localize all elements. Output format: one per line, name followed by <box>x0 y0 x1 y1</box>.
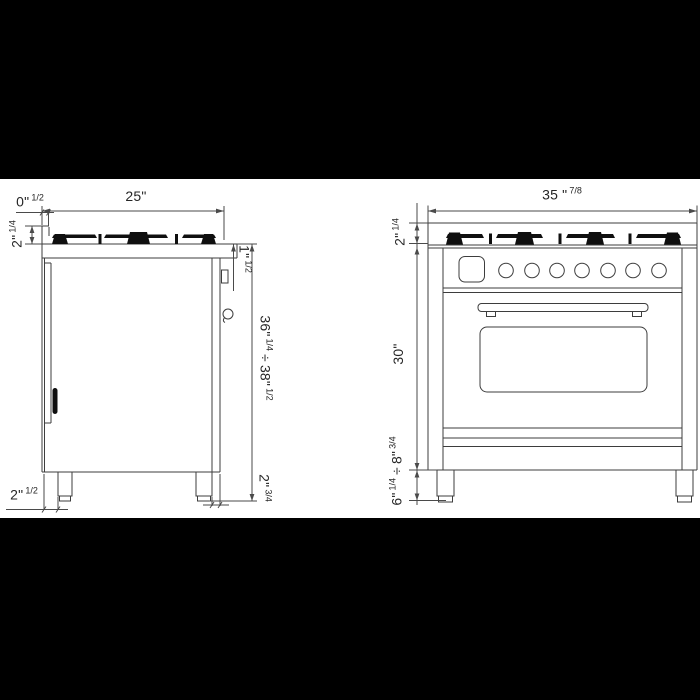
dim-front-width: 35 "7/8 <box>542 187 582 202</box>
dim-side-depth: 25" <box>125 189 146 203</box>
appliance-dimension-drawing: 0"1/2 25" 2"1/4 1"1/2 36"1/4÷38"1/2 2"1/… <box>0 0 700 700</box>
control-knobs <box>499 263 667 278</box>
dim-side-front-leg-inset: 2"3/4 <box>258 474 273 502</box>
front-cooktop-grates <box>446 232 681 245</box>
dim-front-cooktop-height: 2"1/4 <box>392 218 407 246</box>
dim-side-front-lip: 1"1/2 <box>238 245 253 273</box>
oven-display <box>459 257 485 283</box>
dim-side-overall-height: 36"1/4÷38"1/2 <box>259 315 274 400</box>
dim-side-rear-overhang: 0"1/2 <box>16 194 44 209</box>
range-dimension-diagram <box>0 0 700 700</box>
side-view-drawing <box>6 206 257 513</box>
dim-front-oven-height: 30" <box>391 343 405 364</box>
dim-front-leg-height: 6"1/4÷8"3/4 <box>389 436 404 505</box>
side-view-dimensions <box>6 206 257 513</box>
oven-door-handle <box>478 304 648 317</box>
side-cooktop-grates <box>52 232 216 244</box>
front-view-drawing <box>409 203 697 505</box>
dim-side-cooktop-height: 2"1/4 <box>9 220 24 248</box>
oven-door-window <box>480 327 647 392</box>
dim-side-rear-leg-inset: 2"1/2 <box>10 487 38 502</box>
